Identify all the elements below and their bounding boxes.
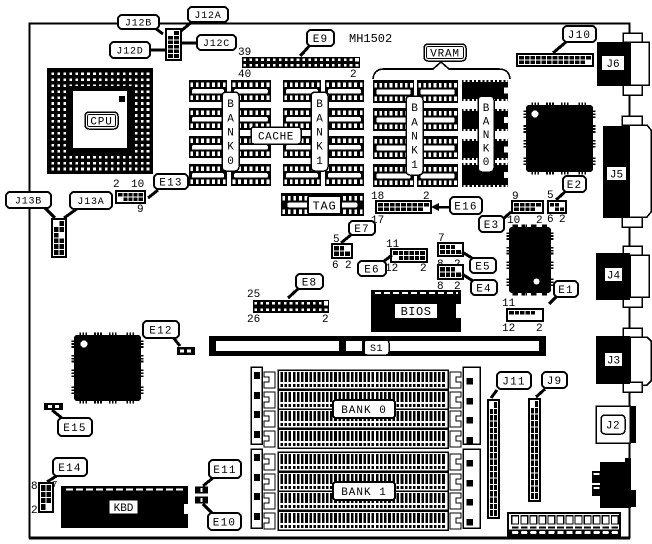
- svg-text:J9: J9: [547, 376, 563, 388]
- svg-text:N: N: [411, 132, 418, 144]
- svg-text:TAG: TAG: [312, 199, 336, 213]
- svg-text:E9: E9: [313, 34, 329, 46]
- svg-text:2: 2: [536, 215, 543, 227]
- svg-text:A: A: [483, 116, 490, 128]
- svg-text:K: K: [483, 144, 490, 156]
- svg-text:E5: E5: [475, 261, 491, 273]
- svg-text:E1: E1: [558, 285, 574, 297]
- svg-text:2: 2: [322, 314, 329, 326]
- svg-text:26: 26: [247, 314, 260, 326]
- svg-text:E11: E11: [213, 465, 236, 477]
- svg-text:18: 18: [371, 191, 384, 203]
- svg-text:KBD: KBD: [114, 503, 134, 515]
- svg-text:A: A: [411, 117, 418, 129]
- svg-text:9: 9: [137, 204, 144, 216]
- svg-text:39: 39: [238, 47, 251, 59]
- svg-text:E4: E4: [476, 283, 492, 295]
- svg-text:CPU: CPU: [90, 116, 112, 128]
- svg-text:J12B: J12B: [125, 19, 152, 30]
- svg-text:J12D: J12D: [116, 47, 143, 58]
- svg-text:E7: E7: [354, 224, 370, 236]
- svg-text:2: 2: [345, 260, 352, 272]
- svg-text:MH1502: MH1502: [349, 32, 392, 46]
- svg-text:2: 2: [423, 191, 430, 203]
- svg-text:E8: E8: [302, 277, 318, 289]
- svg-text:0: 0: [483, 157, 490, 169]
- svg-text:8: 8: [31, 481, 38, 493]
- svg-text:7: 7: [438, 233, 445, 245]
- svg-text:BANK 1: BANK 1: [341, 487, 387, 499]
- svg-text:0: 0: [227, 156, 234, 168]
- svg-text:N: N: [483, 130, 490, 142]
- svg-text:2: 2: [350, 69, 357, 81]
- svg-text:J11: J11: [502, 376, 525, 388]
- svg-text:K: K: [227, 142, 234, 154]
- svg-text:K: K: [316, 142, 323, 154]
- svg-text:5: 5: [333, 234, 340, 246]
- svg-text:E3: E3: [484, 220, 500, 232]
- svg-text:J6: J6: [606, 59, 619, 71]
- svg-text:E13: E13: [159, 177, 182, 189]
- svg-text:11: 11: [386, 239, 400, 251]
- svg-text:10: 10: [131, 179, 144, 191]
- svg-text:2: 2: [113, 179, 120, 191]
- svg-text:N: N: [316, 128, 323, 140]
- svg-text:6: 6: [547, 214, 554, 226]
- svg-text:J4: J4: [607, 271, 621, 283]
- svg-text:J3: J3: [607, 356, 620, 368]
- svg-text:K: K: [411, 146, 418, 158]
- svg-text:A: A: [316, 113, 323, 125]
- svg-text:J2: J2: [606, 420, 620, 432]
- svg-text:BANK 0: BANK 0: [341, 405, 387, 417]
- svg-text:E16: E16: [454, 201, 477, 213]
- svg-text:N: N: [227, 128, 234, 140]
- svg-text:A: A: [227, 113, 234, 125]
- svg-text:7: 7: [52, 480, 57, 490]
- svg-text:J12A: J12A: [194, 11, 221, 22]
- svg-text:B: B: [316, 99, 323, 111]
- svg-text:VRAM: VRAM: [430, 48, 460, 60]
- svg-text:B: B: [411, 103, 418, 115]
- svg-text:1: 1: [316, 156, 323, 168]
- svg-text:E2: E2: [567, 180, 583, 192]
- svg-text:40: 40: [238, 69, 251, 81]
- svg-text:E10: E10: [213, 517, 236, 529]
- svg-text:S1: S1: [370, 344, 383, 355]
- svg-text:E15: E15: [63, 423, 86, 435]
- svg-text:E12: E12: [149, 325, 172, 337]
- svg-text:2: 2: [536, 323, 543, 335]
- svg-text:J13A: J13A: [77, 197, 104, 208]
- svg-text:5: 5: [547, 190, 554, 202]
- svg-text:BIOS: BIOS: [401, 305, 432, 319]
- svg-text:J12C: J12C: [203, 39, 230, 50]
- svg-text:J10: J10: [568, 30, 591, 42]
- svg-text:2: 2: [559, 214, 566, 226]
- svg-text:E14: E14: [58, 463, 81, 475]
- svg-text:B: B: [483, 103, 490, 115]
- svg-text:2: 2: [420, 263, 427, 275]
- svg-text:1: 1: [411, 160, 418, 172]
- svg-text:CACHE: CACHE: [258, 131, 294, 143]
- svg-text:J5: J5: [610, 170, 623, 182]
- svg-text:E6: E6: [364, 264, 380, 276]
- svg-text:J13B: J13B: [15, 197, 42, 208]
- svg-text:25: 25: [247, 289, 260, 301]
- svg-text:11: 11: [502, 298, 516, 310]
- svg-text:12: 12: [502, 323, 515, 335]
- svg-text:6: 6: [332, 260, 339, 272]
- svg-text:2: 2: [31, 505, 38, 517]
- svg-text:9: 9: [512, 191, 519, 203]
- svg-text:B: B: [227, 99, 234, 111]
